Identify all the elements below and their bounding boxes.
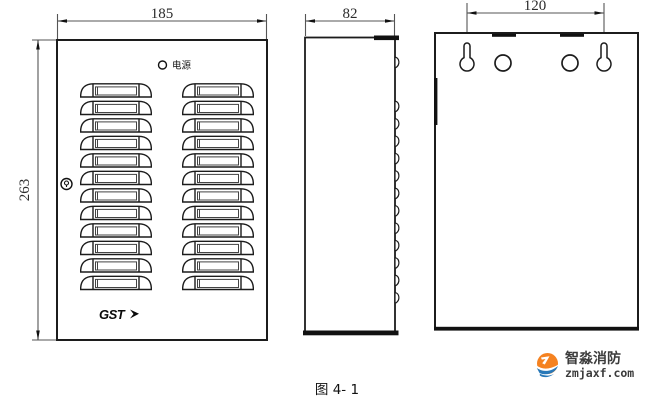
vent-louver xyxy=(183,224,254,237)
technical-drawing: 185 263 电源 xyxy=(0,0,664,410)
vent-louver xyxy=(81,136,152,149)
figure-caption: 图 4- 1 xyxy=(315,382,359,398)
vent-louver xyxy=(183,101,254,114)
cabinet-lock-icon xyxy=(61,179,72,190)
vent-louver xyxy=(183,241,254,254)
vent-louver xyxy=(81,101,152,114)
front-height-label: 263 xyxy=(17,179,33,202)
side-panel-outline xyxy=(305,38,395,333)
louver-profile-bump xyxy=(395,153,399,164)
front-view: 185 263 电源 xyxy=(17,6,267,340)
vent-louver xyxy=(81,119,152,132)
back-bottom-edge xyxy=(434,327,639,331)
vent-louver xyxy=(183,119,254,132)
vent-louver xyxy=(183,136,254,149)
louver-profile-bump xyxy=(395,188,399,199)
back-top-slot-right xyxy=(560,34,584,37)
watermark: 智淼消防 zmjaxf.com xyxy=(535,352,634,379)
side-latch-bump xyxy=(395,57,399,68)
power-led-indicator xyxy=(159,61,167,69)
vent-louver xyxy=(81,276,152,289)
wiring-hole-left xyxy=(495,55,511,71)
side-depth-label: 82 xyxy=(343,6,358,22)
vent-louver xyxy=(81,84,152,97)
vent-louver xyxy=(183,276,254,289)
louver-profile-bump xyxy=(395,118,399,128)
vent-louver xyxy=(183,189,254,202)
watermark-site: zmjaxf.com xyxy=(565,367,634,379)
back-panel-outline xyxy=(435,33,638,329)
gst-logo-text: GST xyxy=(99,307,126,322)
front-height-dimension xyxy=(32,40,56,340)
back-top-slot-left xyxy=(492,34,516,37)
louver-profile-bump xyxy=(395,258,399,269)
vent-louver xyxy=(183,171,254,184)
vent-louver xyxy=(81,224,152,237)
vent-louver xyxy=(81,241,152,254)
louver-profile-bump xyxy=(395,240,399,251)
louver-profile-bump xyxy=(395,101,399,112)
power-led-label: 电源 xyxy=(172,60,192,72)
side-bottom-base xyxy=(303,331,399,336)
vent-louver xyxy=(81,171,152,184)
vent-louver xyxy=(183,154,254,167)
louver-profile-bump xyxy=(395,205,399,216)
back-side-slot xyxy=(434,78,437,125)
louver-profile-bump xyxy=(395,292,399,303)
louver-profile-bump xyxy=(395,223,399,234)
watermark-brand: 智淼消防 xyxy=(565,352,634,367)
figure-canvas: 185 263 电源 xyxy=(0,0,664,410)
vent-louver xyxy=(81,206,152,219)
side-top-flange xyxy=(374,36,399,41)
zhimiao-logo-icon xyxy=(535,352,560,378)
front-width-label: 185 xyxy=(151,6,174,22)
wiring-hole-right xyxy=(562,55,578,71)
back-hole-spacing-label: 120 xyxy=(524,0,547,14)
vent-louver xyxy=(183,259,254,272)
louver-profile-bump xyxy=(395,275,399,286)
vent-louver xyxy=(81,189,152,202)
vent-louver xyxy=(183,206,254,219)
vent-louver xyxy=(81,154,152,167)
vent-louver xyxy=(183,84,254,97)
side-view: 82 xyxy=(303,6,399,335)
louver-profile-bump xyxy=(395,171,399,182)
vent-louver xyxy=(81,259,152,272)
back-view: 120 xyxy=(434,0,639,331)
louver-profile-bump xyxy=(395,136,399,147)
